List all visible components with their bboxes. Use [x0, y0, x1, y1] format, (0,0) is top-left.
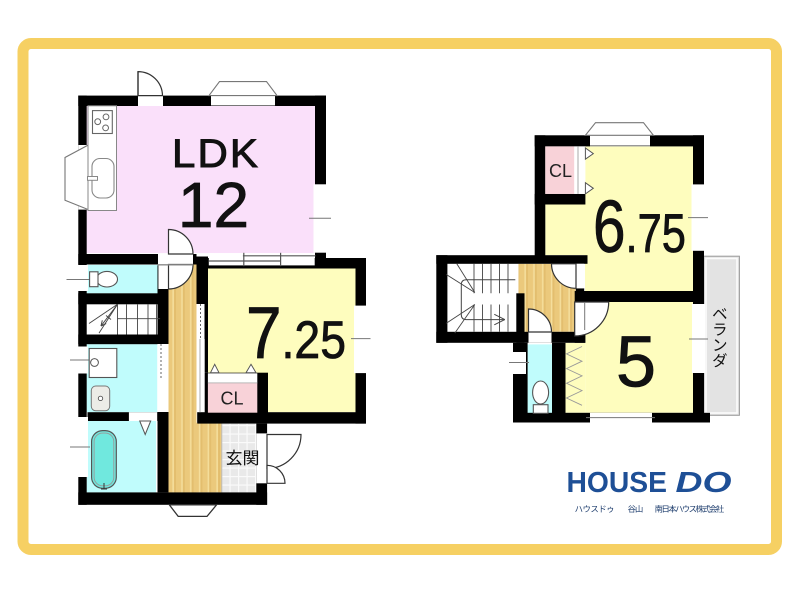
- svg-text:DO: DO: [676, 467, 732, 499]
- svg-text:CL: CL: [220, 389, 243, 409]
- svg-text:HOUSE: HOUSE: [567, 467, 668, 499]
- svg-text:5: 5: [616, 323, 656, 403]
- svg-text:12: 12: [178, 169, 249, 241]
- svg-text:CL: CL: [549, 161, 572, 181]
